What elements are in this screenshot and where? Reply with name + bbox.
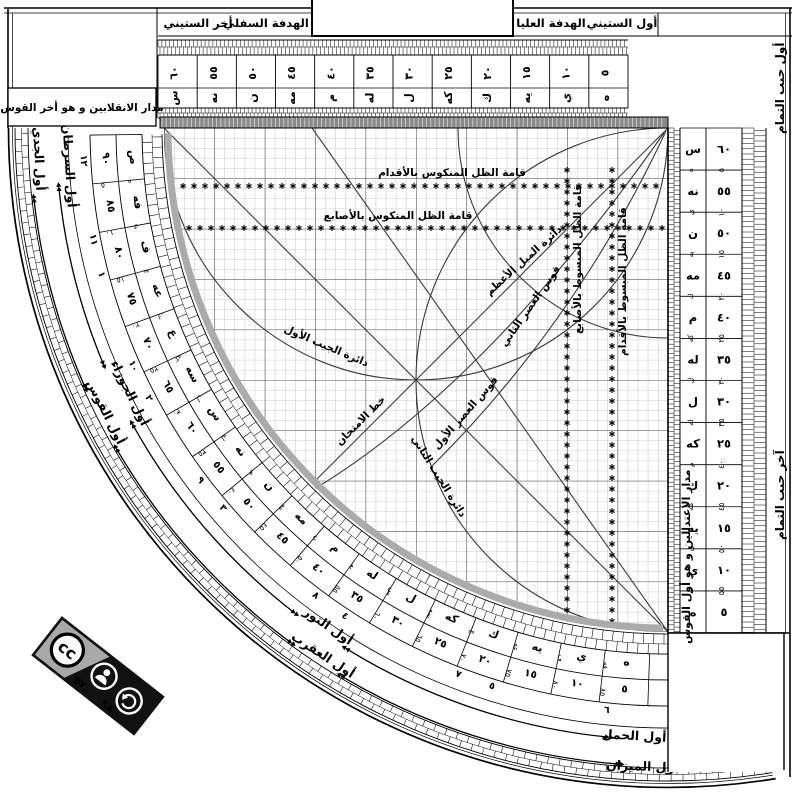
arc-alt-number: ٥: [101, 181, 106, 190]
ring-divider: [204, 370, 213, 375]
ring-divider: [183, 560, 188, 564]
ring-divider: [541, 618, 543, 628]
ring-divider: [71, 373, 77, 375]
ring-divider: [31, 239, 37, 240]
arc-hour-number: ٥: [488, 680, 497, 692]
label-solstice-orbit: مدار الانقلابين و هو أخر القوس: [0, 100, 163, 114]
sixty-scale-letter: مه: [285, 91, 298, 104]
ring-divider: [199, 569, 204, 573]
ring-divider: [380, 701, 383, 707]
ring-divider: [108, 447, 114, 450]
ring-divider: [416, 581, 421, 590]
ring-divider: [157, 198, 167, 199]
arc-letter: له: [364, 566, 380, 583]
label-equinox-orbit: مدار الاعتدالين و هو أول القوس: [679, 470, 693, 644]
ring-divider: [242, 610, 246, 615]
ring-divider: [243, 432, 251, 438]
sixty-scale-letter: ل: [403, 93, 416, 103]
sixty-scale-number: ٢٠: [481, 66, 494, 79]
arc-letter: ك: [487, 627, 501, 643]
ring-divider: [513, 749, 515, 755]
arc-letter: ل: [404, 590, 419, 606]
ring-divider: [41, 284, 47, 286]
sixty-scale-letter: كه: [442, 91, 455, 105]
ring-divider: [552, 764, 553, 770]
ring-divider: [209, 380, 218, 385]
ring-divider: [478, 740, 480, 746]
arc-alt-number: ٤٠: [225, 485, 237, 497]
arc-alt-letter: ن: [311, 534, 320, 543]
ring-divider: [251, 617, 255, 622]
ring-divider: [364, 537, 370, 545]
ring-divider: [611, 772, 612, 778]
ring-divider: [340, 687, 343, 693]
ring-divider: [571, 761, 572, 767]
ring-divider: [216, 594, 221, 599]
ring-divider: [582, 627, 584, 637]
ring-divider: [464, 603, 468, 612]
ring-divider: [124, 486, 129, 490]
arc-alt-letter: فه: [601, 661, 610, 669]
ring-divider: [298, 495, 305, 502]
arc-number: ٧٠: [140, 335, 156, 351]
ring-divider: [24, 180, 30, 181]
ring-divider: [225, 603, 229, 608]
label-last-cosine: آخر جيب التمام: [772, 449, 788, 540]
arc-number: ٦٥: [160, 378, 177, 395]
ring-divider: [28, 215, 34, 216]
ring-divider: [72, 392, 78, 395]
ring-divider: [146, 506, 151, 510]
ring-divider: [505, 754, 507, 760]
ring-divider: [161, 265, 171, 268]
ring-divider: [482, 748, 484, 754]
arc-hour-number: ١١: [87, 233, 100, 246]
sixty-scale-number: ٣٠: [403, 66, 416, 79]
ring-divider: [176, 543, 181, 547]
ring-divider: [585, 638, 587, 648]
sixty-scale-letter: م: [324, 94, 337, 102]
ring-divider: [102, 437, 108, 440]
ring-divider: [208, 577, 213, 582]
ring-divider: [152, 524, 157, 528]
ring-divider: [33, 250, 39, 251]
ring-divider: [434, 724, 436, 730]
ring-divider: [606, 640, 607, 650]
ring-divider: [161, 525, 166, 529]
arc-alt-letter: ي: [132, 223, 139, 232]
label-mankus-aqdam: قامة الظل المنكوس بالأقدام: [378, 166, 526, 179]
ring-divider: [459, 741, 461, 747]
ring-divider: [301, 484, 308, 491]
arc-number: ١٥: [523, 667, 538, 682]
ring-divider: [425, 575, 430, 584]
ring-divider: [233, 602, 237, 607]
ring-divider: [371, 704, 374, 710]
arc-alt-number: ٥٠: [293, 554, 305, 566]
sixty-scale-number: ٤٠: [324, 66, 337, 79]
ring-divider: [389, 565, 394, 573]
ring-divider: [503, 618, 506, 627]
ring-divider: [185, 333, 194, 337]
sixty-scale-letter: ك: [481, 93, 494, 103]
sixty-scale-letter: ي: [559, 93, 572, 103]
ring-divider: [158, 208, 168, 210]
ring-divider: [67, 381, 73, 384]
ring-divider: [319, 675, 322, 680]
cosine-number: ٤٠: [717, 310, 731, 324]
ring-divider: [242, 618, 246, 623]
cosine-alt-letter: ي: [686, 209, 695, 215]
ring-divider: [472, 596, 476, 605]
ring-divider: [138, 505, 143, 509]
ring-divider: [602, 630, 603, 640]
ring-divider: [105, 455, 111, 458]
ring-divider: [416, 570, 421, 579]
ring-divider: [398, 571, 403, 580]
ring-divider: [513, 621, 516, 631]
arc-alt-letter: س: [385, 587, 396, 598]
ring-divider: [82, 414, 88, 417]
ring-divider: [22, 222, 28, 223]
arc-letter: يه: [531, 640, 545, 655]
ring-divider: [164, 238, 174, 240]
zodiac-arrow: [343, 677, 617, 764]
arc-letter: ص: [126, 149, 140, 164]
ring-divider: [316, 498, 323, 505]
ring-divider: [93, 435, 99, 438]
ring-divider: [146, 194, 156, 195]
ring-divider: [448, 737, 450, 743]
ring-divider: [190, 343, 199, 347]
ring-divider: [26, 246, 32, 247]
ring-divider: [46, 326, 52, 328]
label-mankus-asabi: قامة الظل المنكوس بالأصابع: [324, 209, 473, 222]
ring-divider: [175, 277, 185, 280]
ring-divider: [76, 384, 82, 387]
ring-divider: [287, 469, 294, 476]
arc-letter: فه: [130, 195, 145, 211]
arc-hour-number: ٦: [603, 705, 610, 717]
ring-divider: [31, 269, 37, 270]
ring-divider: [170, 295, 179, 298]
cosine-alt-number: ١٠: [717, 208, 726, 217]
ring-divider: [120, 467, 126, 470]
cosine-letter: س: [685, 142, 701, 156]
equinox-corner-box: مدار الاعتدالين و هو أول القوس: [668, 470, 784, 772]
cosine-number: ٥٥: [717, 184, 731, 198]
ring-divider: [369, 695, 372, 701]
arc-number: ٨٥: [104, 199, 118, 213]
ring-divider: [192, 324, 201, 328]
ring-divider: [231, 397, 239, 402]
arc-number: ٤٠: [310, 561, 328, 578]
ring-divider: [159, 533, 164, 537]
ring-divider: [575, 636, 577, 646]
cosine-alt-number: ٢٠: [717, 292, 726, 301]
ring-divider: [261, 633, 265, 638]
ring-divider: [36, 262, 42, 263]
cosine-alt-number: ١٥: [717, 250, 726, 259]
ring-divider: [633, 633, 634, 643]
ring-divider: [231, 415, 239, 421]
cosine-number: ٢٠: [717, 479, 731, 493]
ring-divider: [25, 192, 31, 193]
ring-divider: [540, 762, 541, 768]
cosine-alt-number: ٤٥: [717, 503, 726, 512]
sixty-scale-number: ١٥: [520, 66, 533, 80]
ring-divider: [329, 681, 332, 687]
ring-divider: [144, 173, 154, 174]
ring-divider: [435, 590, 439, 599]
ring-divider: [401, 711, 404, 717]
ring-divider: [280, 648, 284, 653]
arc-letter: ي: [576, 649, 588, 663]
ring-divider: [114, 457, 120, 460]
ring-divider: [599, 771, 600, 777]
ring-divider: [248, 422, 256, 428]
ring-divider: [50, 337, 56, 339]
arc-number: ٥٠: [240, 495, 257, 513]
ring-divider: [559, 759, 560, 765]
arc-number: ٣٥: [348, 589, 365, 606]
ring-divider: [153, 235, 163, 237]
ring-divider: [66, 363, 72, 365]
ring-divider: [529, 760, 530, 766]
cosine-letter: نه: [687, 184, 698, 198]
ring-divider: [627, 642, 628, 652]
ring-divider: [178, 286, 187, 289]
arc-number: ٢٥: [432, 635, 449, 651]
ring-divider: [544, 629, 546, 639]
ring-divider: [571, 625, 573, 635]
ring-divider: [44, 296, 50, 298]
cosine-alt-letter: ك: [686, 293, 695, 299]
ring-divider: [43, 315, 49, 317]
ring-divider: [404, 719, 407, 725]
sixty-scale-number: ٥: [598, 69, 611, 76]
cosine-alt-letter: كه: [686, 334, 695, 342]
sixty-scale-letter: ن: [246, 93, 259, 102]
ring-divider: [158, 255, 168, 257]
ring-divider: [33, 280, 39, 282]
cosine-alt-number: ٣٥: [717, 418, 726, 427]
right-outer-strip: [742, 128, 766, 633]
arc-hour-number: ٨: [310, 589, 321, 601]
ring-divider: [524, 752, 525, 758]
ring-divider: [131, 495, 136, 499]
ring-divider: [145, 515, 150, 519]
ring-divider: [207, 586, 212, 591]
cosine-letter: ن: [688, 226, 698, 240]
cosine-alt-number: ٢٥: [717, 334, 726, 343]
arc-hour-number: ١٢: [78, 155, 90, 167]
ring-divider: [444, 584, 448, 593]
arc-hour-number: ٣: [217, 502, 229, 514]
grid-top-bar: [160, 117, 668, 128]
ring-divider: [54, 348, 60, 350]
cosine-number: ٥٠: [717, 226, 731, 240]
ring-divider: [536, 754, 537, 760]
ring-divider: [164, 275, 174, 278]
ring-divider: [90, 134, 142, 135]
ring-divider: [194, 352, 203, 356]
arc-letter: ه: [623, 655, 630, 668]
cosine-letter: ل: [688, 395, 698, 409]
zodiac-arrow: [134, 427, 293, 612]
ring-divider: [151, 224, 161, 226]
ring-divider: [551, 621, 553, 631]
ring-divider: [623, 632, 624, 642]
arc-letter: ف: [138, 239, 154, 254]
ring-divider: [453, 588, 457, 597]
ring-divider: [99, 445, 105, 448]
ring-divider: [454, 599, 458, 608]
cosine-alt-letter: له: [686, 419, 695, 425]
sixty-scale-number: ٢٥: [442, 66, 455, 80]
sixty-scale: ٥ه١٠ي١٥يه٢٠ك٢٥كه٣٠ل٣٥له٤٠م٤٥مه٥٠ن٥٥نه٦٠س: [158, 40, 628, 118]
ring-divider: [328, 672, 331, 678]
ring-divider: [289, 655, 293, 660]
ring-divider: [133, 487, 138, 491]
arc-letter: ن: [262, 478, 278, 494]
ring-divider: [269, 464, 277, 471]
right-inner-strip: [668, 128, 680, 633]
arc-alt-letter: ل: [195, 394, 203, 403]
ring-divider: [521, 613, 524, 623]
ring-divider: [54, 329, 60, 331]
ring-divider: [262, 456, 270, 462]
cc-by-sa-badge: cc BY SA: [32, 618, 162, 735]
ring-divider: [19, 199, 25, 200]
ring-divider: [531, 616, 534, 626]
ring-divider: [199, 578, 204, 583]
arc-hour-number: ٧: [454, 668, 464, 680]
ring-divider: [730, 771, 731, 777]
ring-divider: [111, 466, 117, 469]
sixty-scale-frame: [158, 40, 628, 118]
sixty-scale-letter: ه: [598, 95, 611, 102]
cosine-letter: مه: [686, 268, 700, 282]
cosine-alt-number: ٥٥: [717, 587, 726, 596]
ring-divider: [63, 370, 69, 372]
ring-divider: [382, 709, 385, 715]
ring-divider: [309, 491, 316, 498]
ring-divider: [483, 611, 487, 620]
ring-divider: [153, 515, 158, 519]
ring-divider: [167, 542, 172, 546]
ring-divider: [288, 646, 292, 651]
ring-divider: [592, 628, 593, 638]
ring-divider: [547, 757, 548, 763]
arc-letter: ع: [166, 327, 181, 339]
ring-divider: [501, 746, 503, 752]
label-first-capricorn: أول الجدي: [30, 126, 49, 191]
ring-divider: [339, 518, 345, 526]
ring-divider: [215, 370, 224, 375]
ring-divider: [594, 764, 595, 770]
ring-divider: [256, 448, 264, 454]
label-upper-sight: الهدفة العليا: [516, 16, 585, 30]
ring-divider: [139, 496, 144, 500]
ring-divider: [143, 163, 153, 164]
arc-letter: م: [328, 540, 342, 555]
arc-number: ٥٥: [210, 459, 227, 476]
ring-divider: [637, 643, 638, 653]
ring-divider: [199, 361, 208, 366]
cosine-alt-letter: ه: [686, 168, 695, 172]
ring-divider: [463, 592, 467, 601]
ring-divider: [214, 389, 223, 394]
sixty-scale-letter: يه: [520, 93, 533, 104]
cosine-number: ٤٥: [717, 268, 731, 282]
ring-divider: [313, 509, 320, 516]
cosine-alt-letter: يه: [686, 251, 695, 257]
label-last-sixty: أخر الستيني: [163, 15, 232, 30]
ring-divider: [279, 639, 283, 644]
ring-divider: [471, 744, 473, 750]
ring-divider: [337, 529, 343, 537]
ring-divider: [490, 743, 492, 749]
ring-divider: [28, 257, 34, 258]
ring-divider: [390, 706, 393, 712]
ring-divider: [233, 611, 237, 616]
ring-divider: [260, 438, 268, 444]
sine-quadrant-diagram: قامة الظل المنكوس بالأقدام قامة الظل الم…: [0, 0, 794, 794]
ring-divider: [210, 361, 219, 366]
arc-alt-number: ١٥: [116, 274, 126, 285]
cosine-letter: كه: [686, 437, 700, 451]
ring-divider: [561, 623, 563, 633]
arc-number: ٢٠: [477, 653, 493, 669]
sixty-scale-number: ٥٥: [207, 66, 220, 80]
cosine-number: ١٠: [717, 563, 731, 577]
ring-divider: [181, 296, 190, 299]
ring-divider: [356, 531, 362, 539]
label-first-sixty: أول الستيني: [587, 15, 658, 31]
ring-divider: [511, 610, 514, 620]
ring-divider: [482, 600, 486, 609]
ring-divider: [273, 454, 281, 460]
ring-divider: [51, 318, 57, 320]
ring-divider: [177, 314, 186, 318]
ring-divider: [493, 615, 496, 624]
arc-hour-number: ١: [95, 270, 107, 278]
ring-divider: [359, 690, 362, 696]
ring-divider: [216, 586, 221, 591]
ring-divider: [29, 227, 35, 228]
ring-divider: [564, 766, 565, 772]
ring-divider: [181, 324, 190, 328]
sixty-scale-letter: نه: [207, 93, 220, 104]
ring-divider: [117, 476, 122, 479]
ring-divider: [595, 639, 596, 649]
ring-divider: [329, 523, 335, 531]
solstice-box: مدار الانقلابين و هو أخر القوس: [0, 88, 163, 126]
cosine-number: ٣٥: [717, 352, 731, 366]
arc-alt-number: ٢٠: [130, 320, 141, 331]
ring-divider: [533, 627, 536, 637]
arc-alt-number: ٨٥: [598, 688, 608, 697]
arc-alt-letter: يه: [143, 268, 151, 277]
ring-divider: [415, 724, 418, 730]
ring-divider: [354, 542, 360, 550]
ring-divider: [38, 273, 44, 274]
ring-divider: [185, 306, 194, 310]
ring-divider: [554, 632, 556, 642]
label-mabsut-asabi: قامة الظل المبسوط بالأصابع: [571, 184, 584, 334]
ring-divider: [39, 303, 45, 305]
